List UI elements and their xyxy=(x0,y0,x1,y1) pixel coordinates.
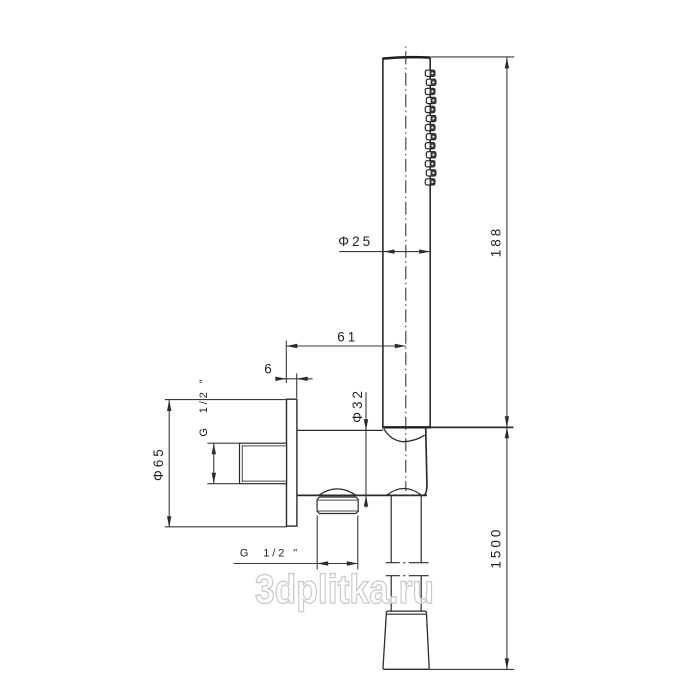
svg-text:Φ65: Φ65 xyxy=(151,446,166,481)
svg-text:Φ32: Φ32 xyxy=(350,388,365,423)
svg-text:188: 188 xyxy=(488,226,503,258)
svg-text:G 1/2 ": G 1/2 " xyxy=(240,547,300,559)
svg-text:Φ25: Φ25 xyxy=(338,234,373,249)
svg-text:61: 61 xyxy=(337,329,358,344)
svg-text:1500: 1500 xyxy=(489,527,504,569)
svg-text:3dplitka.ru: 3dplitka.ru xyxy=(255,566,434,612)
svg-text:6: 6 xyxy=(264,361,275,376)
svg-text:G 1/2 ": G 1/2 " xyxy=(198,376,210,436)
